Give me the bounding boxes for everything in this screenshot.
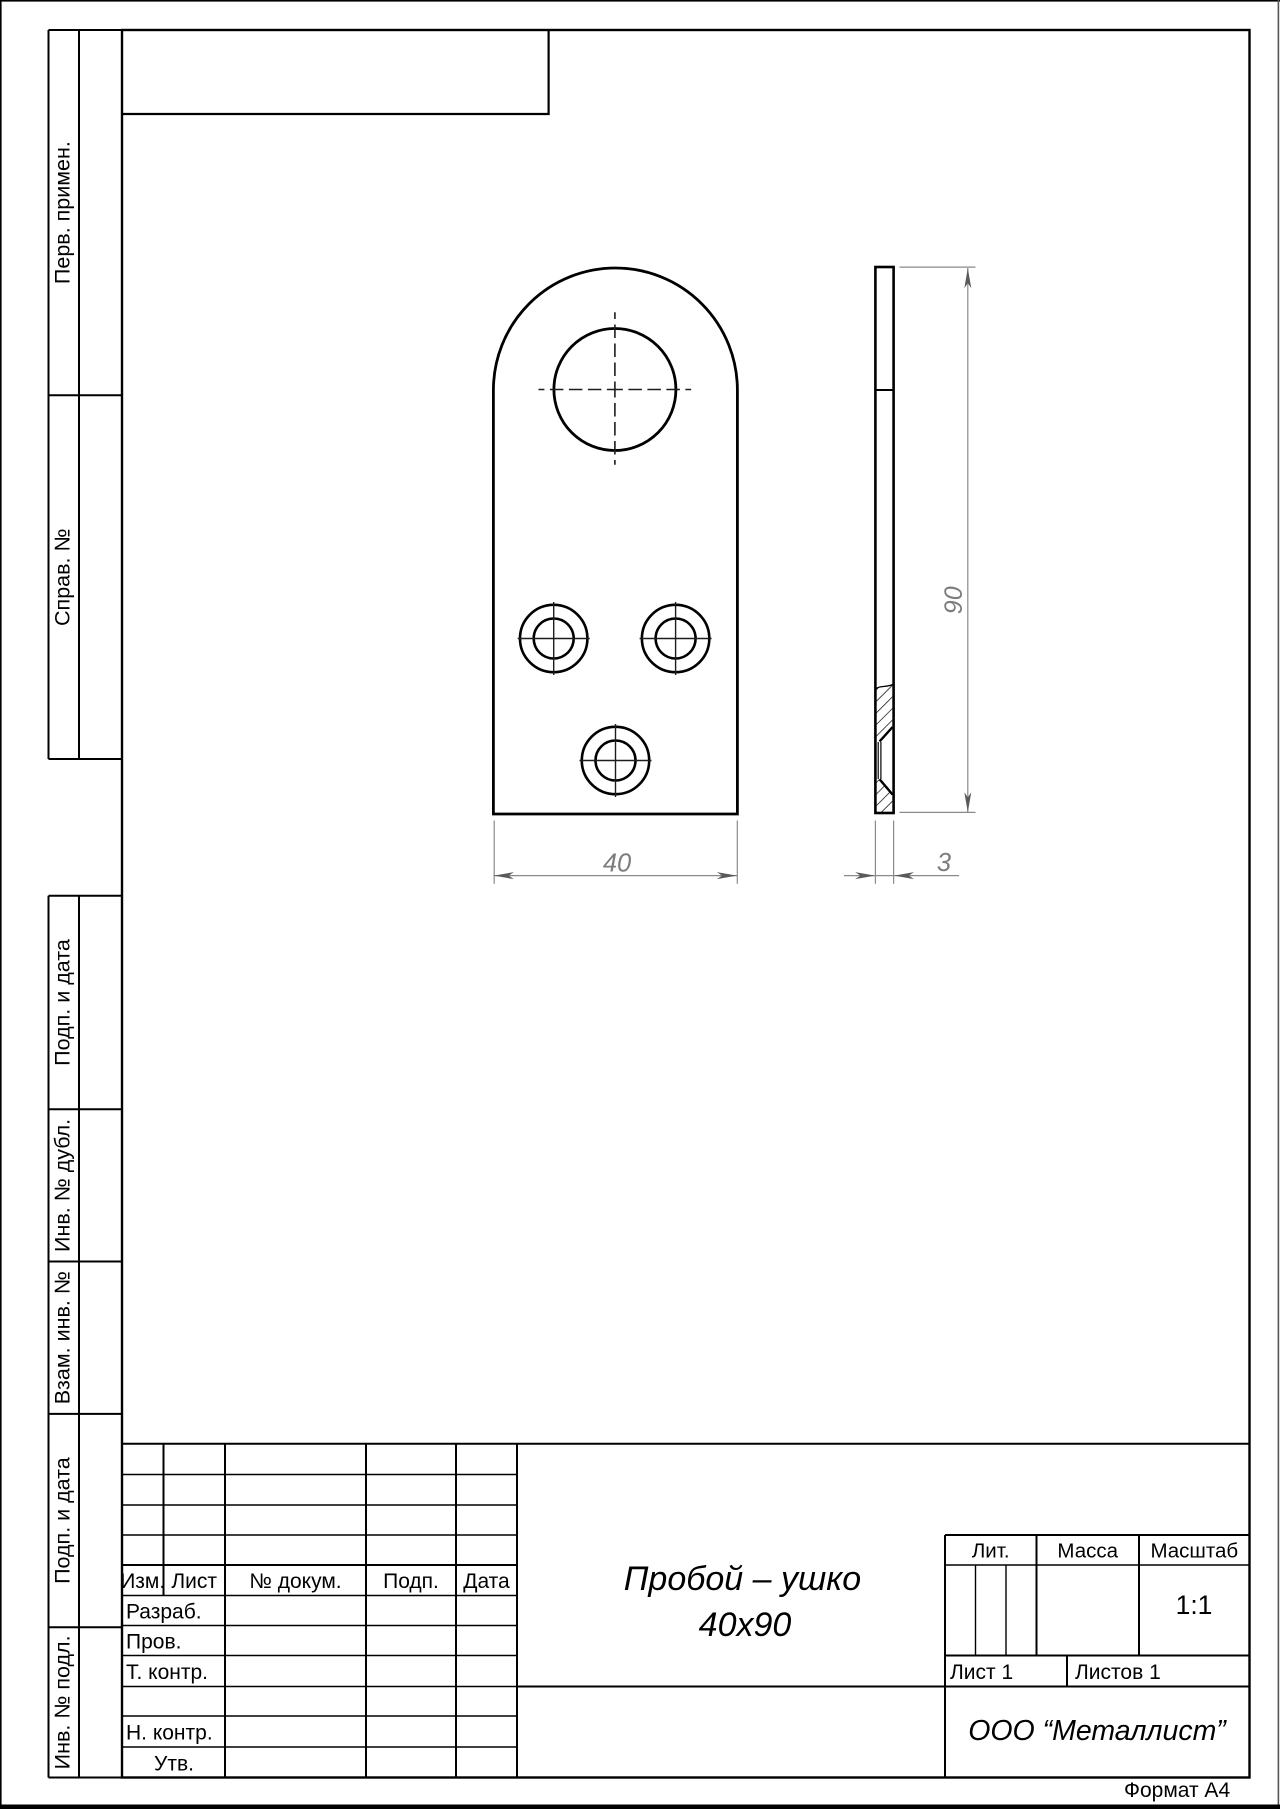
svg-text:Взам. инв. №: Взам. инв. № xyxy=(51,1271,75,1404)
svg-text:Утв.: Утв. xyxy=(154,1752,194,1775)
svg-text:Разраб.: Разраб. xyxy=(126,1601,202,1624)
svg-text:Масштаб: Масштаб xyxy=(1150,1540,1238,1563)
svg-text:Инв. № дубл.: Инв. № дубл. xyxy=(51,1119,75,1252)
svg-text:Масса: Масса xyxy=(1057,1540,1118,1563)
svg-text:1:1: 1:1 xyxy=(1176,1590,1213,1620)
svg-text:Подп.: Подп. xyxy=(383,1570,439,1593)
svg-text:Подп. и дата: Подп. и дата xyxy=(51,1457,75,1584)
svg-text:Лист 1: Лист 1 xyxy=(950,1661,1013,1684)
svg-text:Лит.: Лит. xyxy=(972,1540,1010,1563)
svg-text:Листов 1: Листов 1 xyxy=(1075,1661,1161,1684)
svg-text:Н. контр.: Н. контр. xyxy=(126,1722,213,1745)
svg-text:Лист: Лист xyxy=(171,1570,217,1593)
svg-text:Перв. примен.: Перв. примен. xyxy=(51,141,75,284)
svg-text:Подп. и дата: Подп. и дата xyxy=(51,939,75,1066)
svg-text:3: 3 xyxy=(937,849,951,877)
svg-text:Формат А4: Формат А4 xyxy=(1124,1779,1230,1802)
svg-text:Пробой – ушко: Пробой – ушко xyxy=(624,1560,861,1598)
svg-text:Пров.: Пров. xyxy=(126,1631,181,1654)
svg-text:Т. контр.: Т. контр. xyxy=(126,1661,208,1684)
svg-text:№ докум.: № докум. xyxy=(249,1570,341,1593)
svg-text:40: 40 xyxy=(603,849,631,877)
svg-text:Дата: Дата xyxy=(463,1570,510,1593)
svg-text:ООО “Металлист”: ООО “Металлист” xyxy=(968,1715,1227,1747)
svg-text:Изм.: Изм. xyxy=(120,1570,165,1593)
svg-text:Справ. №: Справ. № xyxy=(51,528,75,626)
svg-text:Инв. № подл.: Инв. № подл. xyxy=(51,1635,75,1769)
svg-text:40х90: 40х90 xyxy=(699,1606,792,1644)
svg-text:90: 90 xyxy=(940,586,968,614)
